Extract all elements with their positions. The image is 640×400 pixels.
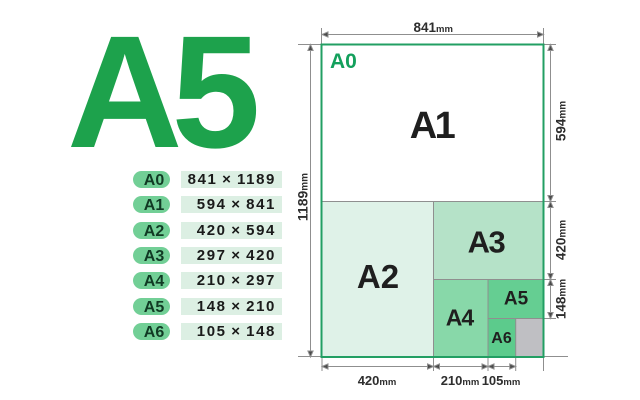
svg-text:A5: A5 [504,289,529,310]
svg-text:420mm: 420mm [358,373,397,388]
svg-text:594mm: 594mm [554,101,569,141]
svg-text:A1: A1 [410,105,456,147]
svg-text:A6: A6 [491,330,512,347]
svg-text:148mm: 148mm [554,279,569,319]
svg-text:A2: A2 [357,258,399,295]
svg-text:420mm: 420mm [554,220,569,260]
svg-text:841mm: 841mm [414,20,453,35]
svg-text:A4: A4 [446,305,475,331]
svg-text:210mm: 210mm [441,373,480,388]
svg-text:A3: A3 [468,225,506,260]
svg-text:A0: A0 [330,50,357,73]
svg-text:1189mm: 1189mm [295,173,311,221]
svg-text:105mm: 105mm [482,373,521,388]
